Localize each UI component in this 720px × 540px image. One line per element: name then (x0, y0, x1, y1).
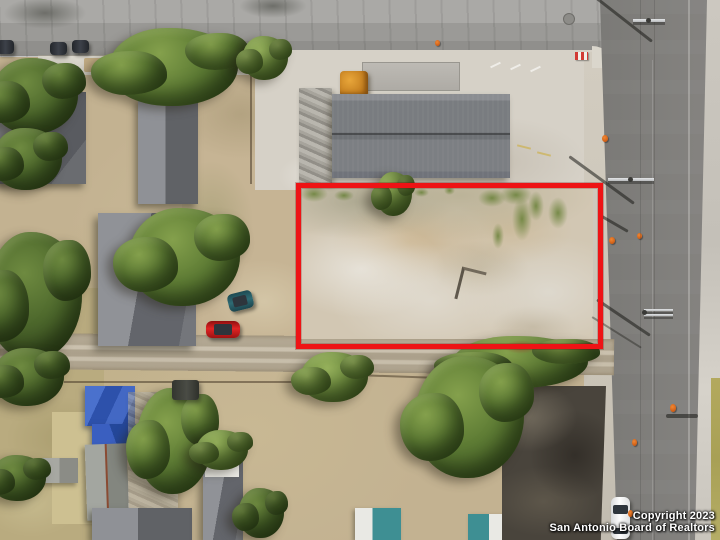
power-line (640, 0, 641, 540)
car-window (232, 295, 248, 308)
tree-canopy (108, 28, 238, 106)
tree-canopy (238, 488, 284, 538)
red-white-marker (575, 52, 588, 60)
warehouse-roof (332, 94, 510, 178)
parked-car (50, 42, 67, 55)
tree-canopy (242, 36, 288, 80)
pavement-chevron (530, 66, 541, 73)
utility-pole (646, 18, 651, 23)
tree-canopy (300, 352, 368, 402)
lane-line (652, 60, 653, 540)
traffic-cone (670, 404, 676, 412)
tree-canopy (128, 208, 240, 306)
traffic-cone (632, 439, 637, 446)
traffic-cone (609, 237, 615, 244)
parked-car (0, 40, 14, 54)
house-roof (138, 98, 198, 204)
tree-canopy (196, 430, 248, 470)
manhole-cover (563, 13, 575, 25)
property-boundary (296, 183, 603, 349)
dark-pickup (172, 380, 199, 400)
pavement-chevron (490, 62, 501, 69)
teal-roof-structure (355, 508, 401, 540)
lane-line (688, 0, 690, 540)
pavement-chevron (510, 64, 521, 71)
teal-roof-structure (468, 514, 502, 540)
house-roof (92, 508, 192, 540)
parked-car (72, 40, 89, 53)
roof-ridge (332, 133, 510, 135)
yellow-pavement-mark (537, 151, 551, 156)
utility-pole-crossarm (644, 314, 673, 316)
power-line (654, 0, 655, 540)
traffic-cone (602, 135, 608, 142)
yellow-pavement-mark (517, 144, 531, 149)
red-car (206, 321, 240, 338)
tree-shadow-on-road (0, 0, 100, 34)
tree-shadow-on-road (228, 0, 318, 22)
speed-bump-shadow (666, 414, 698, 418)
utility-pole (642, 310, 647, 315)
yard-clutter (299, 88, 332, 184)
shingle-texture (332, 94, 510, 178)
container-roof (362, 62, 460, 91)
watermark: Copyright 2023 San Antonio Board of Real… (549, 510, 715, 534)
utility-pole (628, 177, 633, 182)
aerial-photo: Copyright 2023 San Antonio Board of Real… (0, 0, 720, 540)
tree-canopy (414, 356, 524, 478)
watermark-line2: San Antonio Board of Realtors (549, 522, 715, 534)
utility-pole-crossarm (644, 309, 673, 311)
car-window (214, 324, 232, 335)
watermark-line1: Copyright 2023 (549, 510, 715, 522)
traffic-cone (435, 40, 440, 46)
